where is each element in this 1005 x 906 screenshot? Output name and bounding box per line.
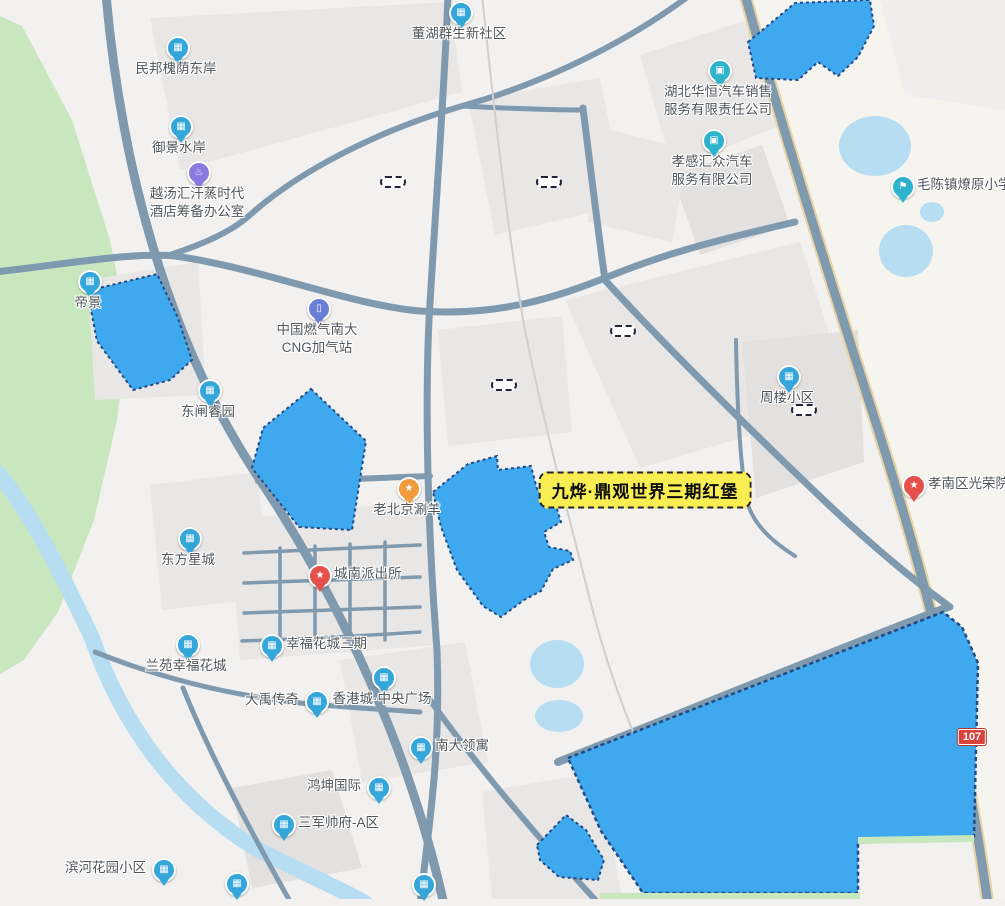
lake-green-strip [600, 893, 860, 899]
map-canvas[interactable] [0, 0, 1005, 899]
map-app: { "colors": { "highlight_blue": "#3fa9f0… [0, 0, 1005, 899]
